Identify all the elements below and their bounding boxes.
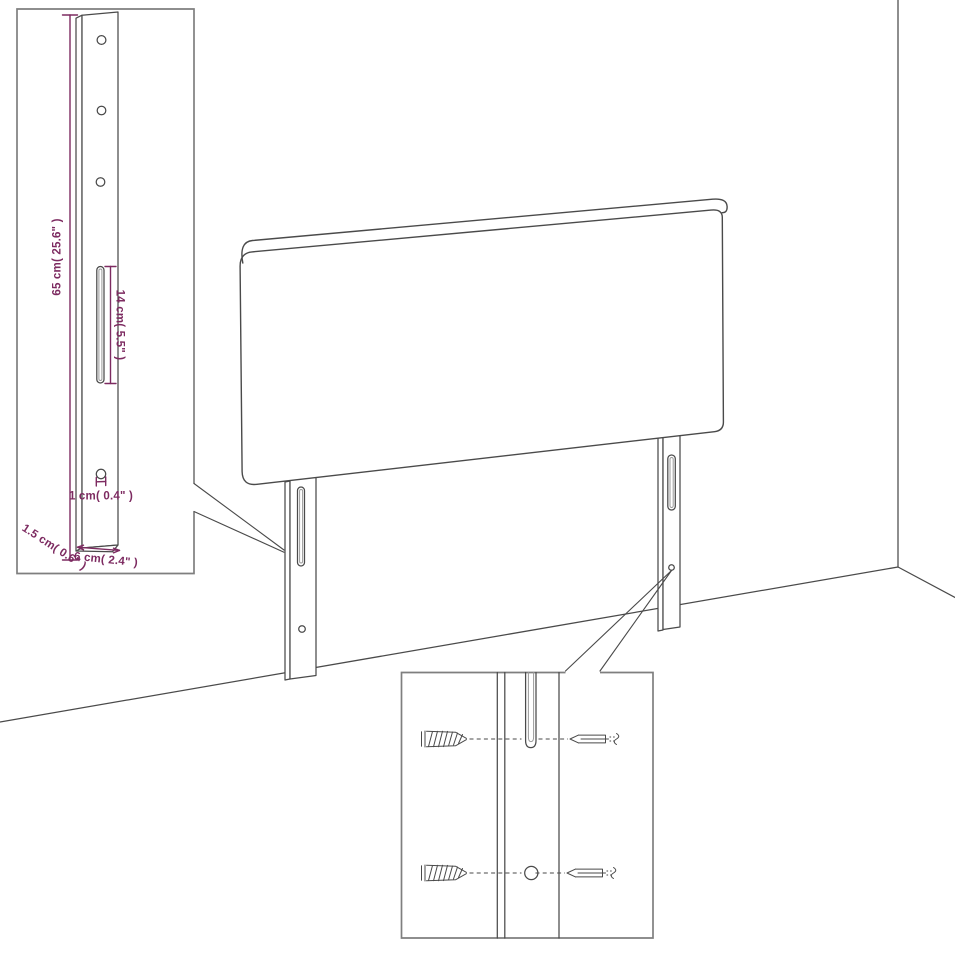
headboard-drawing bbox=[240, 199, 727, 680]
headboard-panel bbox=[240, 199, 727, 484]
diagram-canvas: 65 cm( 25.6" ) 14 cm( 5.5" ) 1 cm( 0.4" … bbox=[0, 0, 955, 955]
bracket-hole-4 bbox=[96, 469, 105, 478]
inset-mounting-detail bbox=[402, 673, 654, 939]
left-leg-slot bbox=[298, 487, 305, 566]
leader-line-inset-top bbox=[194, 484, 284, 551]
floor-line-right bbox=[898, 567, 955, 598]
hole-size-label: 1 cm( 0.4" ) bbox=[69, 491, 133, 503]
bracket-hole-1 bbox=[97, 36, 106, 45]
left-leg-hole bbox=[299, 626, 306, 633]
product-dimension-diagram: 65 cm( 25.6" ) 14 cm( 5.5" ) 1 cm( 0.4" … bbox=[0, 0, 955, 955]
headboard-left-leg bbox=[285, 477, 316, 680]
leg-height-label: 65 cm( 25.6" ) bbox=[52, 218, 64, 295]
leader-line-inset-bottom bbox=[194, 512, 284, 553]
right-leg-hole bbox=[669, 565, 675, 571]
leg-bracket bbox=[76, 12, 118, 552]
right-leg-slot bbox=[668, 455, 676, 510]
bracket-hole-3 bbox=[96, 178, 105, 187]
bracket-hole-2 bbox=[97, 106, 106, 115]
bracket-slot bbox=[97, 267, 104, 384]
slot-length-label: 14 cm( 5.5" ) bbox=[114, 290, 126, 361]
leader-lines-bottom-detail bbox=[566, 571, 672, 672]
headboard-right-leg bbox=[658, 435, 680, 631]
